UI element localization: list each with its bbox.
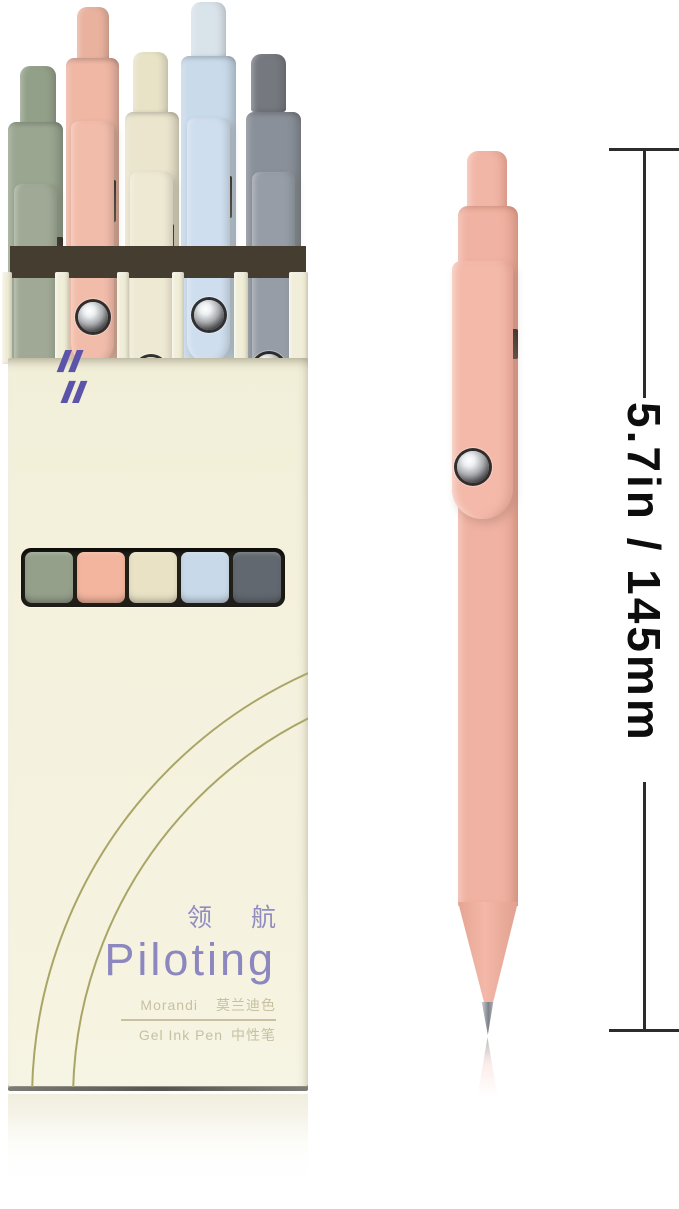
type-chinese: 中性笔 [231, 1027, 276, 1043]
reflection-fade [0, 1115, 679, 1209]
brand-stripes-icon [56, 350, 90, 404]
pen-tip [479, 1002, 496, 1035]
brand-chinese: 领 航 [80, 898, 292, 934]
length-tick-bottom [609, 1029, 679, 1032]
box-slot-divider [289, 272, 308, 364]
box-slot-divider [172, 272, 184, 364]
series-line: Morandi莫兰迪色 [80, 995, 276, 1015]
box-branding: 领 航 Piloting Morandi莫兰迪色 Gel Ink Pen中性笔 [80, 898, 276, 1045]
pen-nose-cone [458, 902, 518, 1006]
brand-english: Piloting [80, 936, 276, 983]
clip-ball-icon [78, 302, 108, 332]
box-slot-divider [234, 272, 248, 364]
clip-ball-icon [194, 300, 224, 330]
color-swatch-blush-pink [77, 552, 125, 603]
color-swatch-sage-green [25, 552, 73, 603]
pen-plunger [77, 7, 109, 61]
type-line: Gel Ink Pen中性笔 [80, 1025, 276, 1045]
dimension-line-upper [643, 151, 646, 398]
type-english: Gel Ink Pen [139, 1027, 223, 1043]
color-swatch-slate-gray [233, 552, 281, 603]
pen-plunger [20, 66, 56, 126]
box-window [21, 548, 285, 607]
pen-clip [452, 261, 513, 519]
pen-plunger [191, 2, 226, 58]
pen-plunger [133, 52, 168, 114]
color-swatch-cream [129, 552, 177, 603]
box-slot-divider [117, 272, 129, 364]
box-slot-divider [2, 272, 12, 364]
clip-ball-icon [457, 451, 489, 483]
product-photo: 领 航 Piloting Morandi莫兰迪色 Gel Ink Pen中性笔 [0, 0, 679, 1209]
color-swatch-powder-blue [181, 552, 229, 603]
text-divider-line [121, 1019, 276, 1021]
pen-plunger [251, 54, 286, 112]
series-english: Morandi [140, 997, 198, 1013]
box-bottom-edge [8, 1087, 308, 1091]
pen-tip-reflection [473, 1037, 502, 1099]
dimension-label: 5.7in / 145mm [620, 402, 668, 780]
dimension-line-lower [643, 782, 646, 1029]
series-chinese: 莫兰迪色 [216, 997, 276, 1013]
pen-plunger [467, 151, 507, 211]
